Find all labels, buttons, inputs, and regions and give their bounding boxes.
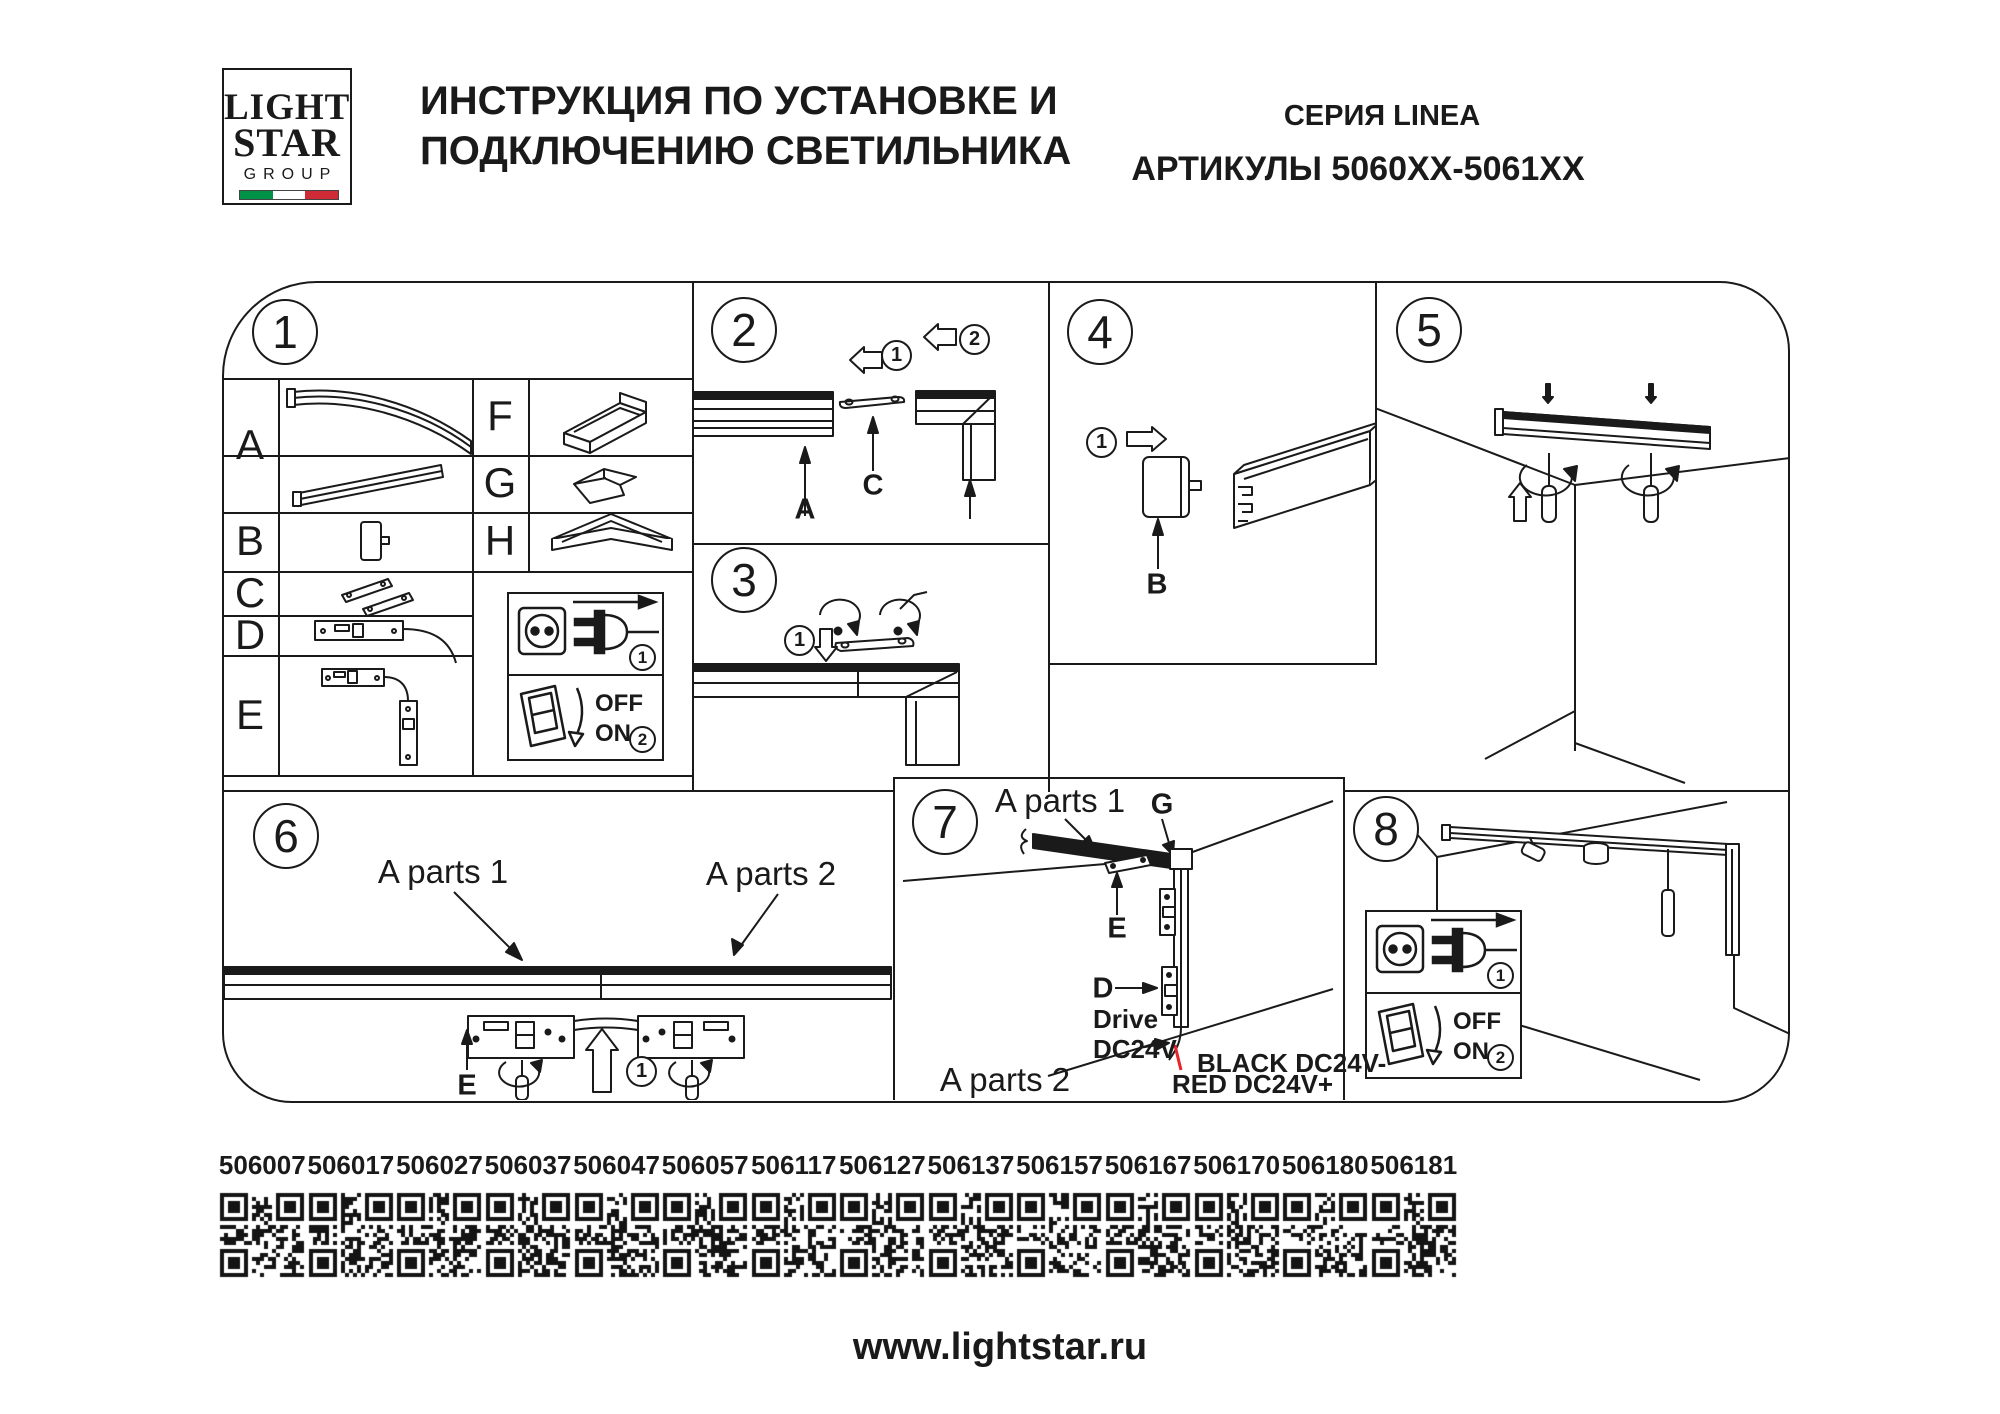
step-badge: 1 <box>629 644 656 671</box>
qr-code-label: 506057 <box>662 1150 749 1181</box>
table-line <box>222 512 692 514</box>
qr-item: 506037 <box>484 1150 573 1279</box>
qr-code-label: 506180 <box>1282 1150 1369 1181</box>
table-line <box>222 775 692 777</box>
section-3-number: 3 <box>711 547 777 613</box>
divider <box>893 777 895 1100</box>
qr-item: 506181 <box>1370 1150 1459 1279</box>
section-6-number: 6 <box>253 803 319 869</box>
qr-code-label: 506157 <box>1016 1150 1103 1181</box>
part-label-f: F <box>487 392 513 440</box>
series-name: СЕРИЯ LINEA <box>1230 100 1534 133</box>
qr-code-image <box>1104 1191 1192 1279</box>
qr-code-image <box>1370 1191 1458 1279</box>
qr-code-label: 506170 <box>1193 1150 1280 1181</box>
part-label-c: C <box>235 569 265 617</box>
qr-item: 506027 <box>395 1150 484 1279</box>
qr-code-image <box>573 1191 661 1279</box>
qr-code-label: 506037 <box>485 1150 572 1181</box>
qr-item: 506057 <box>661 1150 750 1279</box>
divider <box>222 790 895 792</box>
step-badge: 1 <box>1086 427 1117 458</box>
off-label: OFF <box>595 690 643 718</box>
qr-code-image <box>218 1191 306 1279</box>
table-line <box>278 378 280 775</box>
table-line <box>528 378 530 571</box>
a-parts-1-label: A parts 1 <box>995 782 1125 820</box>
step-badge: 1 <box>881 340 912 371</box>
qr-code-image <box>1193 1191 1281 1279</box>
drive-label-line2: DC24V <box>1093 1034 1177 1065</box>
qr-code-image <box>1015 1191 1103 1279</box>
qr-item: 506017 <box>307 1150 396 1279</box>
divider <box>1343 790 1790 792</box>
qr-code-image <box>307 1191 395 1279</box>
a-parts-1-label: A parts 1 <box>378 853 508 891</box>
callout-b: B <box>1147 569 1168 602</box>
step-badge: 2 <box>959 324 990 355</box>
qr-code-image <box>750 1191 838 1279</box>
callout-e: E <box>1107 913 1126 946</box>
table-line <box>222 378 692 380</box>
part-label-b: B <box>236 517 264 565</box>
callout-g: G <box>1151 789 1174 822</box>
table-line <box>222 455 692 457</box>
step-badge: 1 <box>1487 962 1514 989</box>
qr-code-image <box>661 1191 749 1279</box>
lightstar-logo: LIGHT STAR GROUP <box>222 68 352 205</box>
section-7-number: 7 <box>912 789 978 855</box>
part-label-a: A <box>236 421 264 469</box>
part-label-h: H <box>485 517 515 565</box>
step-badge: 1 <box>784 625 815 656</box>
qr-code-label: 506137 <box>928 1150 1015 1181</box>
plug-in-step: 1 <box>509 594 662 676</box>
qr-code-label: 506047 <box>573 1150 660 1181</box>
qr-row: 5060075060175060275060375060475060575061… <box>218 1150 1458 1279</box>
qr-item: 506167 <box>1104 1150 1193 1279</box>
a-parts-2-label: A parts 2 <box>706 855 836 893</box>
step-badge: 2 <box>629 726 656 753</box>
part-label-e: E <box>236 691 264 739</box>
qr-item: 506170 <box>1192 1150 1281 1279</box>
qr-item: 506180 <box>1281 1150 1370 1279</box>
callout-e: E <box>457 1070 476 1103</box>
table-line <box>222 571 692 573</box>
qr-code-label: 506007 <box>219 1150 306 1181</box>
qr-code-label: 506027 <box>396 1150 483 1181</box>
qr-code-image <box>838 1191 926 1279</box>
divider <box>1048 663 1377 665</box>
qr-code-label: 506017 <box>307 1150 394 1181</box>
power-steps-box: 1 OFF ON 2 <box>507 592 664 761</box>
qr-code-label: 506167 <box>1105 1150 1192 1181</box>
diagram-frame <box>222 281 1790 1103</box>
qr-item: 506047 <box>572 1150 661 1279</box>
callout-c: C <box>863 470 884 503</box>
step-badge: 1 <box>626 1056 657 1087</box>
qr-item: 506127 <box>838 1150 927 1279</box>
qr-code-label: 506181 <box>1370 1150 1457 1181</box>
italian-flag-icon <box>239 190 339 200</box>
flag-white-stripe <box>273 191 306 199</box>
flag-red-stripe <box>305 191 338 199</box>
callout-a: A <box>795 494 816 527</box>
divider <box>692 281 694 792</box>
qr-item: 506137 <box>927 1150 1016 1279</box>
switch-on-step: OFF ON 2 <box>1367 994 1520 1074</box>
qr-code-image <box>1281 1191 1369 1279</box>
section-8-number: 8 <box>1353 796 1419 862</box>
divider <box>1375 281 1377 665</box>
drive-label-line1: Drive <box>1093 1004 1158 1035</box>
part-label-g: G <box>484 459 517 507</box>
articles-range: АРТИКУЛЫ 5060XX-5061XX <box>1128 150 1588 189</box>
qr-item: 506117 <box>749 1150 838 1279</box>
section-4-number: 4 <box>1067 299 1133 365</box>
title-line-2: ПОДКЛЮЧЕНИЮ СВЕТИЛЬНИКА <box>420 126 1071 176</box>
instruction-sheet: { "header": { "logo": { "word1": "LIGHT"… <box>0 0 2000 1414</box>
section-2-number: 2 <box>711 297 777 363</box>
a-parts-2-label: A parts 2 <box>940 1061 1070 1099</box>
section-1-number: 1 <box>252 299 318 365</box>
part-label-d: D <box>235 611 265 659</box>
flag-green-stripe <box>240 191 273 199</box>
off-label: OFF <box>1453 1008 1501 1036</box>
on-label: ON <box>595 720 631 748</box>
qr-code-image <box>927 1191 1015 1279</box>
page-title: ИНСТРУКЦИЯ ПО УСТАНОВКЕ И ПОДКЛЮЧЕНИЮ СВ… <box>420 76 1071 176</box>
qr-code-image <box>484 1191 572 1279</box>
on-label: ON <box>1453 1038 1489 1066</box>
power-steps-box: 1 OFF ON 2 <box>1365 910 1522 1079</box>
website-url: www.lightstar.ru <box>0 1326 2000 1369</box>
table-line <box>472 378 474 775</box>
divider <box>893 777 1345 779</box>
callout-d: D <box>1093 973 1114 1006</box>
logo-word-star: STAR <box>224 119 350 166</box>
plug-in-step: 1 <box>1367 912 1520 994</box>
step-badge: 2 <box>1487 1044 1514 1071</box>
qr-code-label: 506127 <box>839 1150 926 1181</box>
title-line-1: ИНСТРУКЦИЯ ПО УСТАНОВКЕ И <box>420 76 1071 126</box>
qr-code-label: 506117 <box>751 1150 836 1181</box>
section-5-number: 5 <box>1396 297 1462 363</box>
divider <box>692 543 1050 545</box>
divider <box>1048 281 1050 792</box>
qr-item: 506157 <box>1015 1150 1104 1279</box>
qr-code-image <box>395 1191 483 1279</box>
qr-item: 506007 <box>218 1150 307 1279</box>
switch-on-step: OFF ON 2 <box>509 676 662 756</box>
wire-red-label: RED DC24V+ <box>1172 1069 1333 1100</box>
logo-word-group: GROUP <box>224 166 350 184</box>
